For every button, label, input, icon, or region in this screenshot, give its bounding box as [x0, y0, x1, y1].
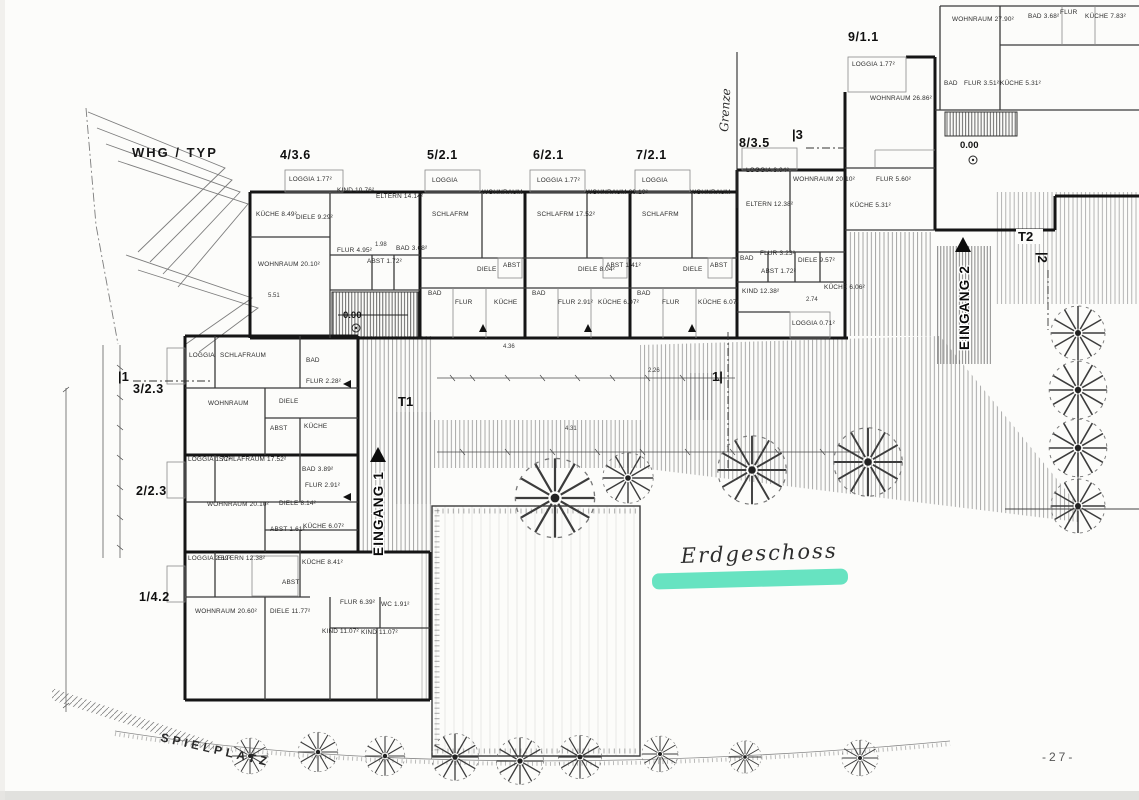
room-label: ABST 1.41² [606, 262, 641, 269]
room-label: KÜCHE 8.41² [302, 558, 343, 566]
room-label: KÜCHE 8.49² [256, 210, 297, 218]
room-label: LOGGIA [642, 177, 668, 184]
room-label: KÜCHE 6.06² [824, 283, 865, 291]
room-label: SCHLAFRM [432, 211, 469, 218]
room-label: BAD [532, 290, 546, 297]
room-label: SCHLAFRAUM 17.52² [219, 456, 286, 463]
room-label: LOGGIA 3.04² [746, 167, 789, 174]
room-label: SCHLAFRM [642, 211, 679, 218]
room-label: LOGGIA 1.77² [852, 61, 895, 68]
room-label: BAD [944, 80, 958, 87]
room-label: WOHNRAUM [690, 189, 731, 196]
room-label: WOHNRAUM 20.60² [195, 608, 257, 615]
room-label: ABST [710, 262, 728, 269]
room-label: KIND 11.07² [361, 629, 398, 636]
room-label: BAD 3.68² [1028, 13, 1059, 20]
room-label: FLUR 3.51² [964, 80, 999, 87]
unit-label: 1/4.2 [139, 590, 170, 604]
room-label: FLUR 4.95² [337, 247, 372, 254]
room-label: LOGGIA 0.71² [792, 320, 835, 327]
room-label: SCHLAFRM 17.52² [537, 211, 595, 218]
unit-label: 5/2.1 [427, 148, 458, 162]
room-label: FLUR [455, 299, 473, 306]
room-label: LOGGIA [189, 352, 215, 359]
room-label: ELTERN 14.14² [376, 193, 423, 200]
grenze-label: Grenze [717, 88, 733, 132]
room-label: FLUR [1060, 9, 1078, 16]
unit-label: 6/2.1 [533, 148, 564, 162]
room-label: DIELE [279, 398, 298, 405]
room-label: LOGGIA [432, 177, 458, 184]
room-label: WOHNRAUM 20.10² [793, 176, 855, 183]
entrance-1-label: EINGANG 1 [371, 471, 386, 556]
section-marker-3: |3 [792, 127, 803, 142]
room-label: BAD 3.89² [302, 466, 333, 473]
room-label: WOHNRAUM [208, 400, 249, 407]
room-label: WOHNRAUM [482, 189, 523, 196]
room-label: BAD [428, 290, 442, 297]
room-label: BAD [306, 357, 320, 364]
room-label: ABST [503, 262, 521, 269]
room-label: ELTERN 12.38² [218, 555, 265, 562]
t1-label: T1 [398, 394, 413, 409]
unit-label: 2/2.3 [136, 484, 167, 498]
room-label: WOHNRAUM 20.10² [207, 501, 269, 508]
floor-plan-scan: 4/3.6 5/2.1 6/2.1 7/2.1 8/3.5 9/1.1 3/2.… [0, 0, 1139, 800]
room-label: KÜCHE 5.31² [850, 201, 891, 209]
room-label: KIND 11.07² [322, 628, 359, 635]
scan-edge-left [0, 0, 5, 800]
room-label: ABST 1.61² [270, 526, 305, 533]
room-label: KÜCHE 5.31² [1000, 79, 1041, 87]
dim-number: 2.26 [648, 368, 660, 374]
room-label: FLUR 2.91² [558, 299, 593, 306]
room-label: BAD 3.68² [396, 245, 427, 252]
room-label: LOGGIA 1.77² [289, 176, 332, 183]
t2-label: T2 [1018, 229, 1033, 244]
room-label: BAD [740, 255, 754, 262]
room-label: KÜCHE 7.83² [1085, 12, 1126, 20]
room-label: FLUR 6.39² [340, 599, 375, 606]
room-label: FLUR 2.91² [305, 482, 340, 489]
room-label: FLUR 5.60² [876, 176, 911, 183]
room-label: DIELE [683, 266, 702, 273]
room-label: DIELE 11.77² [270, 608, 310, 615]
room-label: DIELE [477, 266, 496, 273]
room-label: WOHNRAUM 20.10² [258, 261, 320, 268]
room-label: ABST 1.72² [367, 258, 402, 265]
room-label: KIND 12.38² [742, 288, 779, 295]
room-label: SCHLAFRAUM [220, 352, 266, 359]
section-marker-1: |1 [118, 369, 129, 384]
room-label: FLUR 2.28² [306, 378, 341, 385]
dim-number: 2.74 [806, 297, 818, 303]
room-label: KÜCHE [304, 422, 327, 430]
level-value: 0.00 [343, 310, 362, 321]
unit-label: 9/1.1 [848, 30, 879, 44]
dim-number: 4.31 [565, 426, 577, 432]
floor-plan-svg: 4/3.6 5/2.1 6/2.1 7/2.1 8/3.5 9/1.1 3/2.… [0, 0, 1139, 800]
unit-label: 3/2.3 [133, 382, 164, 396]
room-label: BAD [637, 290, 651, 297]
room-label: WOHNRAUM 20.10² [586, 189, 648, 196]
section-marker-1b: 1| [712, 369, 723, 384]
room-label: WOHNRAUM 26.86² [870, 95, 932, 102]
room-label: FLUR 3.23² [760, 250, 795, 257]
unit-label: 7/2.1 [636, 148, 667, 162]
room-label: ABST 1.72² [761, 268, 796, 275]
room-label: KÜCHE [494, 298, 517, 306]
dim-number: 4.36 [503, 344, 515, 350]
room-label: DIELE 9.57² [798, 257, 835, 264]
room-label: ELTERN 12.38² [746, 201, 793, 208]
dim-number: 1.98 [375, 242, 387, 248]
dim-number: 5.51 [268, 293, 280, 299]
room-label: ABST [282, 579, 300, 586]
room-label: DIELE 8.14² [279, 500, 316, 507]
level-value: 0.00 [960, 140, 979, 151]
room-label: DIELE 9.29² [296, 214, 333, 221]
courtyard [432, 506, 640, 756]
room-label: WOHNRAUM 27.90² [952, 16, 1014, 23]
room-label: WC 1.91² [381, 601, 410, 608]
section-marker-2: |2 [1035, 252, 1050, 263]
room-label: KÜCHE 6.07² [598, 298, 639, 306]
room-label: LOGGIA 1.77² [537, 177, 580, 184]
entrance-2-label: EINGANG 2 [957, 265, 972, 350]
page-number: -27- [1042, 750, 1075, 764]
room-label: KIND 10.76² [337, 187, 374, 194]
room-label: ABST [270, 425, 288, 432]
whg-typ-label: WHG / TYP [132, 145, 218, 160]
room-label: KÜCHE 6.07² [303, 522, 344, 530]
room-label: FLUR [662, 299, 680, 306]
unit-label: 8/3.5 [739, 136, 770, 150]
room-label: KÜCHE 6.07² [698, 298, 739, 306]
scan-edge-bottom [0, 791, 1139, 800]
unit-label: 4/3.6 [280, 148, 311, 162]
